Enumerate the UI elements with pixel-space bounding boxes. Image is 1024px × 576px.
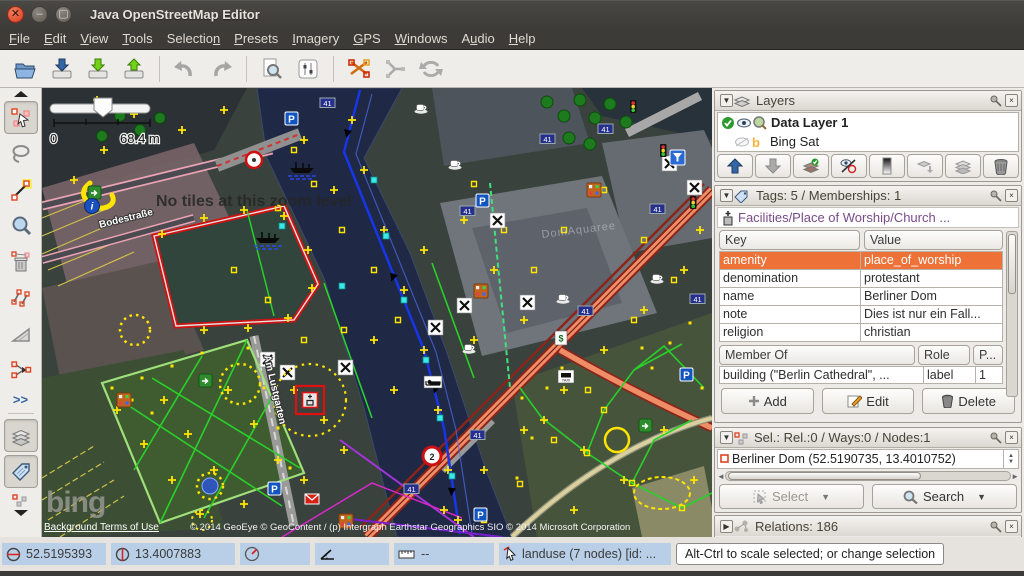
layer-move-up-button[interactable]	[717, 154, 753, 178]
svg-text:b: b	[752, 135, 760, 149]
angle-snap-tool[interactable]	[4, 317, 38, 350]
svg-text:68.4 m: 68.4 m	[120, 131, 160, 146]
position-column-header[interactable]: P...	[973, 345, 1003, 365]
svg-text:TAXI: TAXI	[562, 378, 571, 383]
menu-item-help[interactable]: Help	[502, 29, 543, 48]
membership-row[interactable]: building ("Berlin Cathedral", ... label …	[719, 366, 1003, 384]
latitude-icon	[6, 547, 22, 562]
menu-item-tools[interactable]: Tools	[115, 29, 159, 48]
relations-icon	[733, 519, 750, 533]
svg-text:0: 0	[50, 131, 57, 146]
tags-panel: ▼ Tags: 5 / Memberships: 1 × Facilities/…	[714, 185, 1022, 423]
tags-panel-title: Tags: 5 / Memberships: 1	[756, 188, 989, 203]
layer-opacity-button[interactable]	[869, 154, 905, 178]
pin-icon[interactable]	[989, 520, 1003, 533]
tag-row-religion[interactable]: religionchristian	[719, 324, 1003, 342]
window-title: Java OpenStreetMap Editor	[90, 7, 260, 22]
tag-row-amenity[interactable]: amenityplace_of_worship	[719, 252, 1003, 270]
download-button[interactable]	[80, 53, 116, 85]
parallel-way-tool[interactable]	[4, 281, 38, 314]
upload-button[interactable]	[116, 53, 152, 85]
pin-icon[interactable]	[989, 189, 1003, 202]
preset-link[interactable]: Facilities/Place of Worship/Church ...	[738, 210, 950, 225]
collapse-tags-icon[interactable]: ▼	[720, 189, 733, 202]
layer-merge-button[interactable]	[907, 154, 943, 178]
more-tools-button[interactable]: >>	[13, 392, 28, 407]
selection-icon	[733, 431, 749, 445]
data-layer-icon	[752, 116, 767, 130]
selection-list-item[interactable]: Berliner Dom (52.5190735, 13.4010752) ▲▼	[717, 449, 1019, 469]
edit-tool-column: >>	[0, 88, 42, 537]
menu-item-audio[interactable]: Audio	[454, 29, 501, 48]
title-bar: ✕ – ▢ Java OpenStreetMap Editor	[0, 0, 1024, 28]
layers-panel-title: Layers	[756, 93, 989, 108]
search-button[interactable]: Search▼	[872, 484, 1017, 509]
pointer-icon	[503, 546, 519, 562]
tag-row-name[interactable]: nameBerliner Dom	[719, 288, 1003, 306]
menu-item-file[interactable]: File	[2, 29, 37, 48]
distance-readout: --	[394, 543, 494, 565]
relations-panel: ▶ Relations: 186 ×	[714, 515, 1022, 539]
map-canvas[interactable]: P 41	[42, 88, 712, 537]
list-spinner[interactable]: ▲▼	[1003, 450, 1018, 468]
main-toolbar	[0, 50, 1024, 88]
relations-panel-title: Relations: 186	[755, 519, 989, 534]
expand-relations-icon[interactable]: ▶	[720, 520, 733, 533]
josm-window: ✕ – ▢ Java OpenStreetMap Editor FileEdit…	[0, 0, 1024, 576]
close-icon[interactable]: ✕	[7, 6, 24, 23]
layers-icon	[733, 94, 751, 108]
delete-tag-button[interactable]: Delete	[922, 388, 1015, 414]
layer-move-down-button[interactable]	[755, 154, 791, 178]
layer-delete-button[interactable]	[983, 154, 1019, 178]
tags-panel-toggle[interactable]	[4, 455, 38, 488]
bing-layer-icon: b	[750, 135, 766, 149]
layer-duplicate-button[interactable]	[945, 154, 981, 178]
menu-item-windows[interactable]: Windows	[388, 29, 455, 48]
member-of-column-header[interactable]: Member Of	[719, 345, 915, 365]
layer-show-hide-button[interactable]	[831, 154, 867, 178]
selection-panel-title: Sel.: Rel.:0 / Ways:0 / Nodes:1	[754, 430, 989, 445]
node-icon	[718, 454, 732, 464]
add-tag-button[interactable]: Add	[721, 388, 814, 414]
select-button[interactable]: Select▼	[719, 484, 864, 509]
selection-panel-toggle[interactable]	[4, 491, 38, 509]
menu-item-presets[interactable]: Presets	[227, 29, 285, 48]
hovered-object-readout: landuse (7 nodes) [id: ...	[499, 543, 671, 565]
layer-row-data[interactable]: Data Layer 1	[718, 113, 1018, 132]
close-relations-icon[interactable]: ×	[1005, 520, 1018, 533]
collapse-selection-icon[interactable]: ▼	[720, 431, 733, 444]
layer-activate-button[interactable]	[793, 154, 829, 178]
copyright-text: © 2014 GeoEye © GeoContent / (p) Intergr…	[190, 522, 630, 533]
undo-button[interactable]	[167, 53, 203, 85]
svg-text:i: i	[91, 202, 94, 213]
tags-vertical-scrollbar[interactable]	[1006, 231, 1018, 397]
download-object-button[interactable]	[254, 53, 290, 85]
role-column-header[interactable]: Role	[918, 345, 970, 365]
visible-eye-icon[interactable]	[736, 117, 752, 129]
tag-row-denomination[interactable]: denominationprotestant	[719, 270, 1003, 288]
close-selection-icon[interactable]: ×	[1005, 431, 1018, 444]
close-layers-icon[interactable]: ×	[1005, 94, 1018, 107]
selection-hscrollbar[interactable]: ◄ ►	[717, 470, 1019, 482]
menu-bar: FileEditViewToolsSelectionPresetsImagery…	[0, 28, 1024, 50]
status-bar: 52.5195393 13.4007883 -- landuse (7 node…	[0, 537, 1024, 571]
layer-row-bing[interactable]: b Bing Sat	[718, 132, 1018, 151]
status-hint: Alt-Ctrl to scale selected; or change se…	[676, 543, 944, 565]
merge-nodes-tool[interactable]	[4, 353, 38, 386]
latitude-readout: 52.5195393	[2, 543, 106, 565]
pin-icon[interactable]	[989, 94, 1003, 107]
maximize-icon[interactable]: ▢	[55, 6, 72, 23]
menu-item-gps[interactable]: GPS	[346, 29, 387, 48]
longitude-readout: 13.4007883	[111, 543, 235, 565]
ruler-icon	[398, 548, 416, 560]
value-column-header[interactable]: Value	[864, 230, 1003, 250]
menu-item-view[interactable]: View	[73, 29, 115, 48]
angle-readout	[315, 543, 389, 565]
church-preset-icon	[721, 210, 735, 226]
close-tags-icon[interactable]: ×	[1005, 189, 1018, 202]
preferences-button[interactable]	[290, 53, 326, 85]
pin-icon[interactable]	[989, 431, 1003, 444]
layers-panel: ▼ Layers × Data Layer 1 b Bing Sat	[714, 90, 1022, 182]
zoom-tool[interactable]	[4, 209, 38, 242]
combine-way-button[interactable]	[377, 53, 413, 85]
window-bottom-edge	[0, 571, 1024, 576]
edit-tag-button[interactable]: Edit	[822, 388, 915, 414]
heading-readout	[240, 543, 310, 565]
refresh-button[interactable]	[413, 53, 449, 85]
select-tool[interactable]	[4, 101, 38, 134]
save-button[interactable]	[44, 53, 80, 85]
selection-panel: ▼ Sel.: Rel.:0 / Ways:0 / Nodes:1 × Berl…	[714, 427, 1022, 513]
scroll-tools-down-icon[interactable]	[6, 509, 36, 517]
layers-panel-toggle[interactable]	[4, 419, 38, 452]
no-tiles-message: No tiles at this zoom level	[156, 193, 352, 210]
draw-nodes-tool[interactable]	[4, 173, 38, 206]
collapse-toolbar-icon[interactable]	[8, 90, 34, 98]
layer-name: Data Layer 1	[771, 115, 848, 130]
terms-of-use-link[interactable]: Background Terms of Use	[44, 522, 159, 533]
longitude-icon	[115, 547, 131, 562]
hidden-eye-icon[interactable]	[734, 136, 750, 148]
menu-item-imagery[interactable]: Imagery	[285, 29, 346, 48]
split-way-button[interactable]	[341, 53, 377, 85]
collapse-layers-icon[interactable]: ▼	[720, 94, 733, 107]
layer-name: Bing Sat	[770, 134, 819, 149]
minimize-icon[interactable]: –	[31, 6, 48, 23]
menu-item-selection[interactable]: Selection	[160, 29, 227, 48]
heading-icon	[244, 546, 261, 562]
delete-tool[interactable]	[4, 245, 38, 278]
open-button[interactable]	[8, 53, 44, 85]
svg-text:$: $	[558, 334, 563, 344]
lasso-tool[interactable]	[4, 137, 38, 170]
tag-icon	[733, 189, 751, 203]
redo-button[interactable]	[203, 53, 239, 85]
bing-logo: bing	[46, 486, 105, 519]
svg-text:2: 2	[429, 452, 434, 462]
menu-item-edit[interactable]: Edit	[37, 29, 73, 48]
angle-icon	[319, 547, 336, 561]
tag-row-note[interactable]: noteDies ist nur ein Fall...	[719, 306, 1003, 324]
key-column-header[interactable]: Key	[719, 230, 860, 250]
